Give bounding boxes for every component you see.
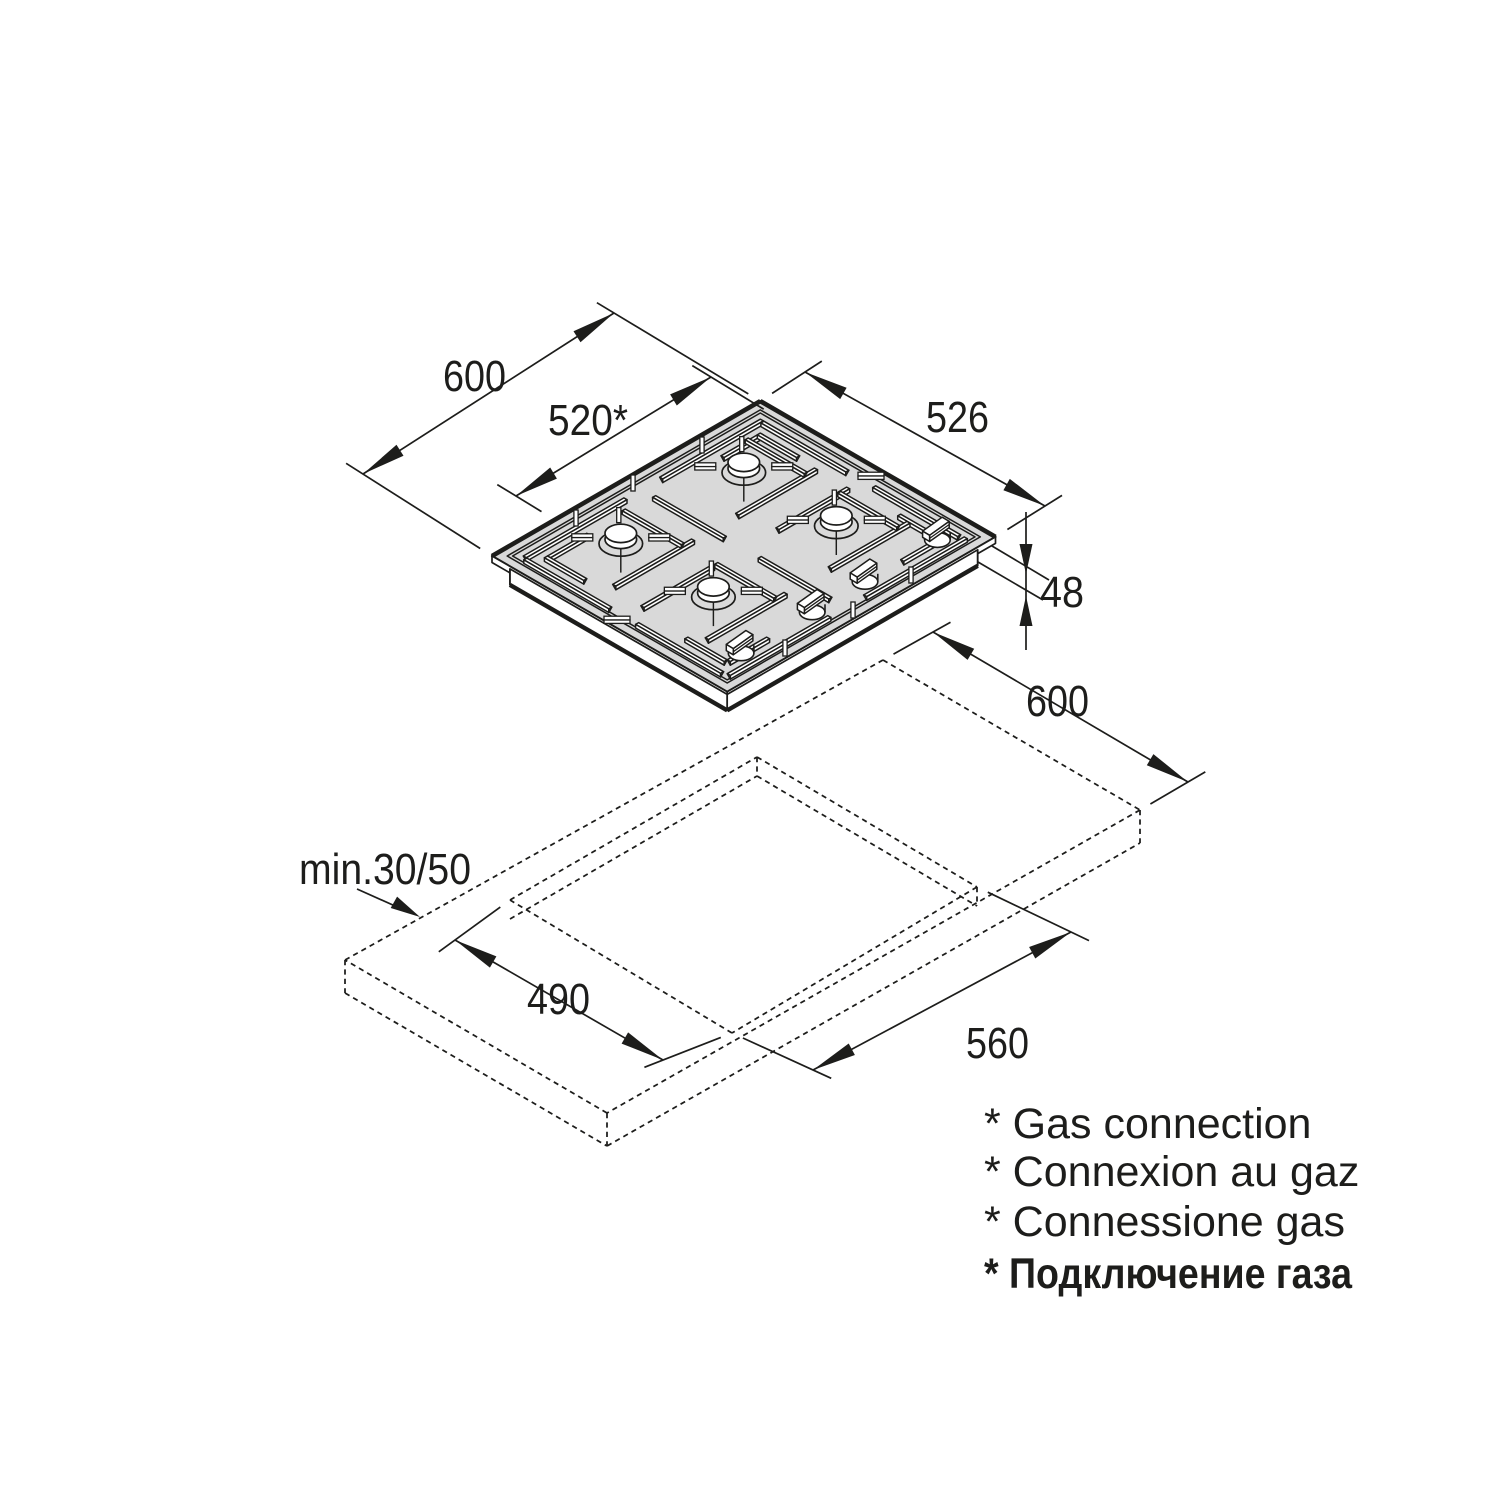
svg-text:600: 600 bbox=[1026, 677, 1089, 726]
svg-text:520*: 520* bbox=[548, 396, 628, 445]
svg-text:min.30/50: min.30/50 bbox=[299, 845, 471, 894]
svg-text:* Gas connection: * Gas connection bbox=[984, 1100, 1311, 1148]
svg-text:48: 48 bbox=[1040, 568, 1084, 617]
svg-text:526: 526 bbox=[926, 393, 989, 442]
svg-text:600: 600 bbox=[443, 352, 506, 401]
svg-text:* Connexion au gaz: * Connexion au gaz bbox=[984, 1148, 1359, 1196]
svg-text:490: 490 bbox=[527, 975, 590, 1024]
svg-text:* Connessione gas: * Connessione gas bbox=[984, 1198, 1345, 1246]
svg-text:* Подключение газа: * Подключение газа bbox=[984, 1250, 1353, 1298]
svg-text:560: 560 bbox=[966, 1019, 1029, 1068]
